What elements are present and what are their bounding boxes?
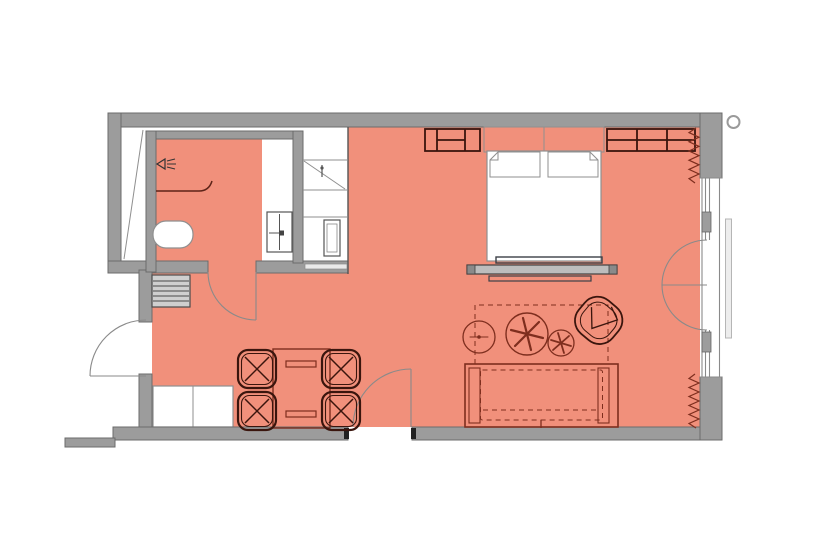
wall-top	[110, 113, 722, 127]
toilet	[153, 221, 193, 248]
wall-entry-upper	[139, 270, 152, 322]
wall-left	[108, 113, 121, 273]
wall-right-top	[700, 113, 722, 178]
minibar-cabinet	[153, 386, 233, 427]
bathroom-door-opening	[208, 261, 256, 273]
window-mullion-top	[702, 212, 711, 232]
wardrobe-safe	[324, 220, 340, 256]
balcony-railing	[726, 219, 732, 338]
floor-plan-canvas	[0, 0, 831, 555]
wall-bottom-right	[412, 427, 722, 440]
wall-right-bottom	[700, 377, 722, 440]
wall-bath-left	[146, 131, 156, 272]
pillow-left	[490, 152, 540, 177]
wall-entry-lower	[139, 374, 152, 428]
pillow-right	[548, 152, 598, 177]
service-shaft	[121, 127, 146, 261]
window-mullion-bottom	[702, 332, 711, 352]
column-marker	[728, 116, 740, 128]
wall-vanity-wardrobe	[293, 131, 303, 263]
door-jamb-right	[411, 428, 416, 439]
wall-stub-bottom-left	[65, 438, 115, 447]
entry-door-swing	[90, 320, 146, 376]
wall-bath-bottom	[108, 261, 208, 273]
floor-plan-drawing	[0, 0, 831, 555]
wall-bottom-left	[113, 427, 348, 440]
luggage-rack	[152, 275, 190, 307]
wardrobe-plinth-detail	[305, 264, 347, 269]
wall-bath-inner-top	[146, 131, 303, 139]
vanity-basin	[267, 212, 292, 252]
